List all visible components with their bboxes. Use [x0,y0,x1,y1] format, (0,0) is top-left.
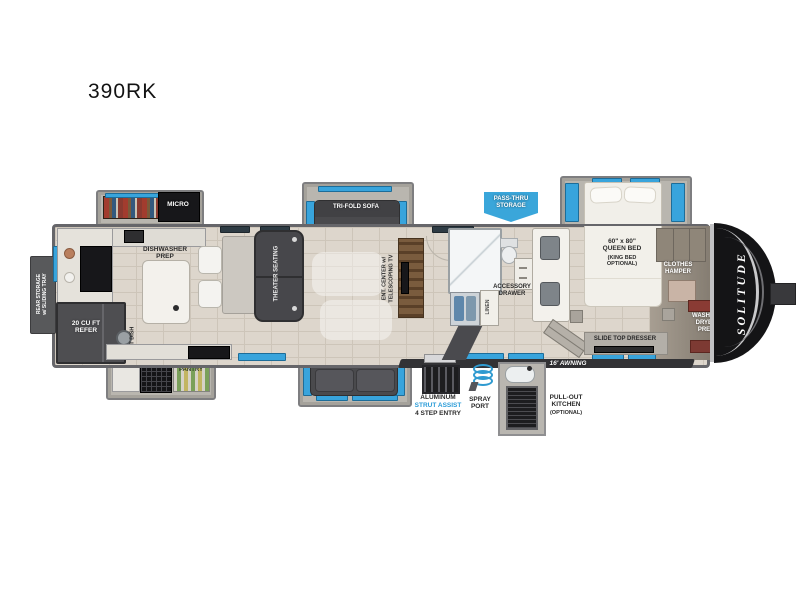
plate [64,248,75,259]
dishwasher-prep-label: DISHWASHER PREP [131,246,199,261]
spray-nozzle [469,382,479,391]
bookshelf [103,196,159,219]
pillow [590,186,623,204]
nightstand [662,308,675,321]
dining-table [222,236,258,314]
plate [64,272,75,283]
hitch-pin [770,283,796,305]
window [671,183,685,222]
dresser-rail [594,346,654,353]
sofa-cushion [315,369,354,392]
page-title: 390RK [88,80,157,104]
pillow [624,186,657,204]
window [238,353,286,361]
refer-label: 20 CU FT REFER [56,320,116,335]
pantry-label: PANTRY [171,367,211,374]
ent-center-label: ENT. CENTER w/ TELESCOPING TV [381,243,394,315]
rear-cooktop [80,246,112,292]
floorplan-page: 390RK MICRO TRI-FOLD SOFA PANTRY TRI-FOL… [0,0,800,600]
entry-steps [422,365,460,394]
hamper-box [668,280,696,302]
island-drain [173,305,179,311]
dining-chair [198,246,222,274]
micro-label: MICRO [158,201,198,208]
dining-chair [198,280,222,308]
rear-storage-label: REAR STORAGE w/ SLIDING TRAY [36,258,48,330]
rug [312,252,384,296]
vanity-sink [540,236,560,260]
bed-option-label: (KING BED OPTIONAL) [588,255,656,268]
window [318,186,392,192]
dresser-label: SLIDE TOP DRESSER [582,336,668,343]
washer-front [454,296,464,321]
sofa-top-label: TRI-FOLD SOFA [314,204,398,211]
window [220,226,250,233]
nightstand [570,310,583,323]
dryer-front [466,296,476,321]
vanity-sink [540,282,560,306]
sofa-cushion [356,369,395,392]
theater-label: THEATER SEATING [273,234,280,314]
pullout-optional-label: (OPTIONAL) [540,410,592,416]
cupholder [292,306,297,311]
brand-label: SOLITUDE [734,239,748,347]
clothes-hamper-label: CLOTHES HAMPER [656,262,700,276]
bed-size-label: 60" x 80" QUEEN BED [588,238,656,253]
kitchen-island [142,260,190,324]
pullout-grill [506,386,538,430]
lower-cooktop [188,346,230,359]
telescoping-tv [401,262,409,294]
kitchen-sink [124,230,144,243]
pullout-faucet [527,366,532,371]
window [565,183,579,222]
pullout-kitchen-label: PULL-OUT KITCHEN [540,394,592,409]
spray-port-label: SPRAY PORT [458,396,502,411]
entry-label-line3: 4 STEP ENTRY [406,410,470,417]
pass-thru-label: PASS-THRU STORAGE [484,196,538,210]
front-cabinets [656,228,706,262]
washer-dryer-stack [450,292,480,326]
accessory-drawer-label: ACCESSORY DRAWER [488,284,536,298]
cupholder [292,237,297,242]
